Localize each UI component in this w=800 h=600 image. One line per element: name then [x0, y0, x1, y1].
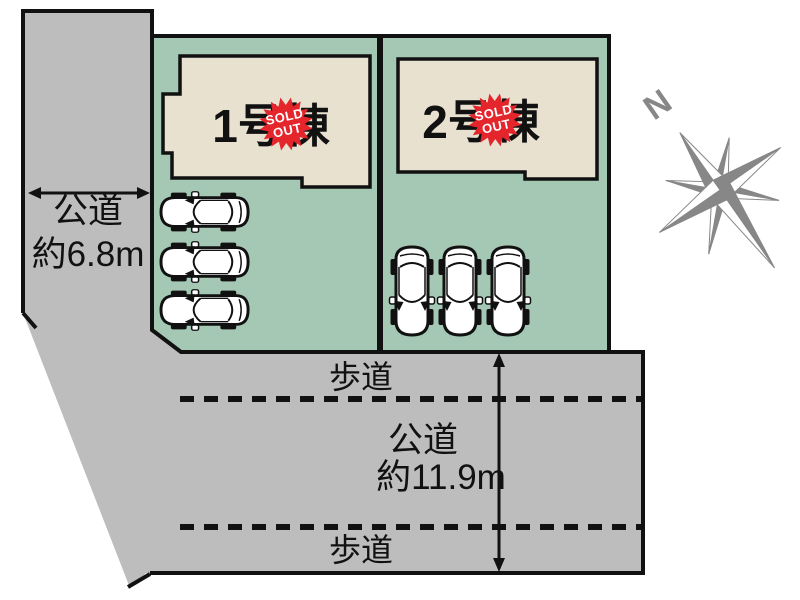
- car: [161, 192, 248, 233]
- car: [486, 247, 531, 335]
- bottom-road-label-line2: 約11.9m: [376, 458, 506, 497]
- sidewalk-bottom-label: 歩道: [329, 532, 393, 568]
- left-road-label-line2: 約6.8m: [32, 235, 145, 274]
- site-plan: 1号棟 2号棟 SOLD OUT SOLD OUT 公道 約6.8m 歩道 公道…: [0, 0, 800, 600]
- compass-north-label: N: [637, 82, 679, 127]
- sidewalk-top-label: 歩道: [329, 359, 393, 395]
- car: [161, 290, 248, 331]
- car: [438, 247, 483, 335]
- site-plan-drawing: 1号棟 2号棟 SOLD OUT SOLD OUT 公道 約6.8m 歩道 公道…: [0, 0, 800, 600]
- compass-rose: [619, 90, 800, 310]
- left-road-label-line1: 公道: [53, 192, 123, 231]
- car: [390, 247, 435, 335]
- bottom-road-label-line1: 公道: [388, 421, 458, 460]
- car: [161, 242, 248, 283]
